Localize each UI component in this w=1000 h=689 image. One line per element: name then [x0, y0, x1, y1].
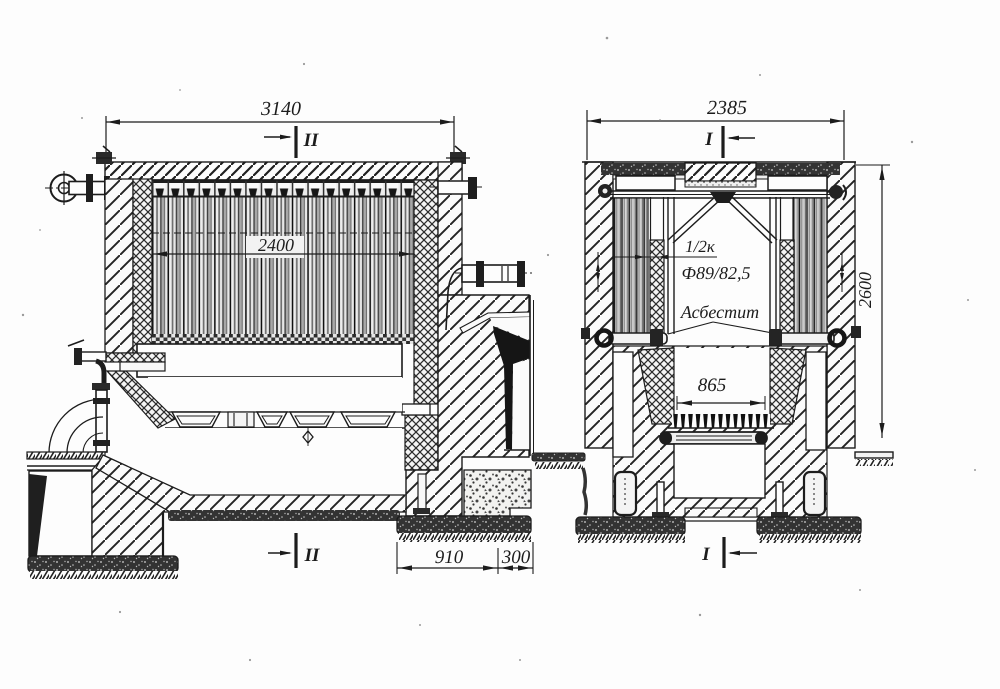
svg-text:Ф89/82,5: Ф89/82,5 [682, 263, 751, 283]
svg-text:300: 300 [501, 547, 531, 568]
svg-text:2400: 2400 [258, 235, 294, 255]
svg-text:910: 910 [435, 547, 464, 568]
svg-text:2385: 2385 [707, 97, 747, 119]
svg-text:2600: 2600 [855, 272, 875, 308]
svg-text:1/2к: 1/2к [685, 237, 716, 256]
svg-text:Асбестит: Асбестит [680, 302, 759, 322]
svg-text:3140: 3140 [260, 98, 301, 120]
svg-text:II: II [304, 545, 320, 566]
svg-text:II: II [303, 130, 319, 151]
svg-text:865: 865 [698, 375, 727, 396]
svg-text:I: I [701, 544, 710, 565]
svg-text:I: I [704, 129, 713, 150]
